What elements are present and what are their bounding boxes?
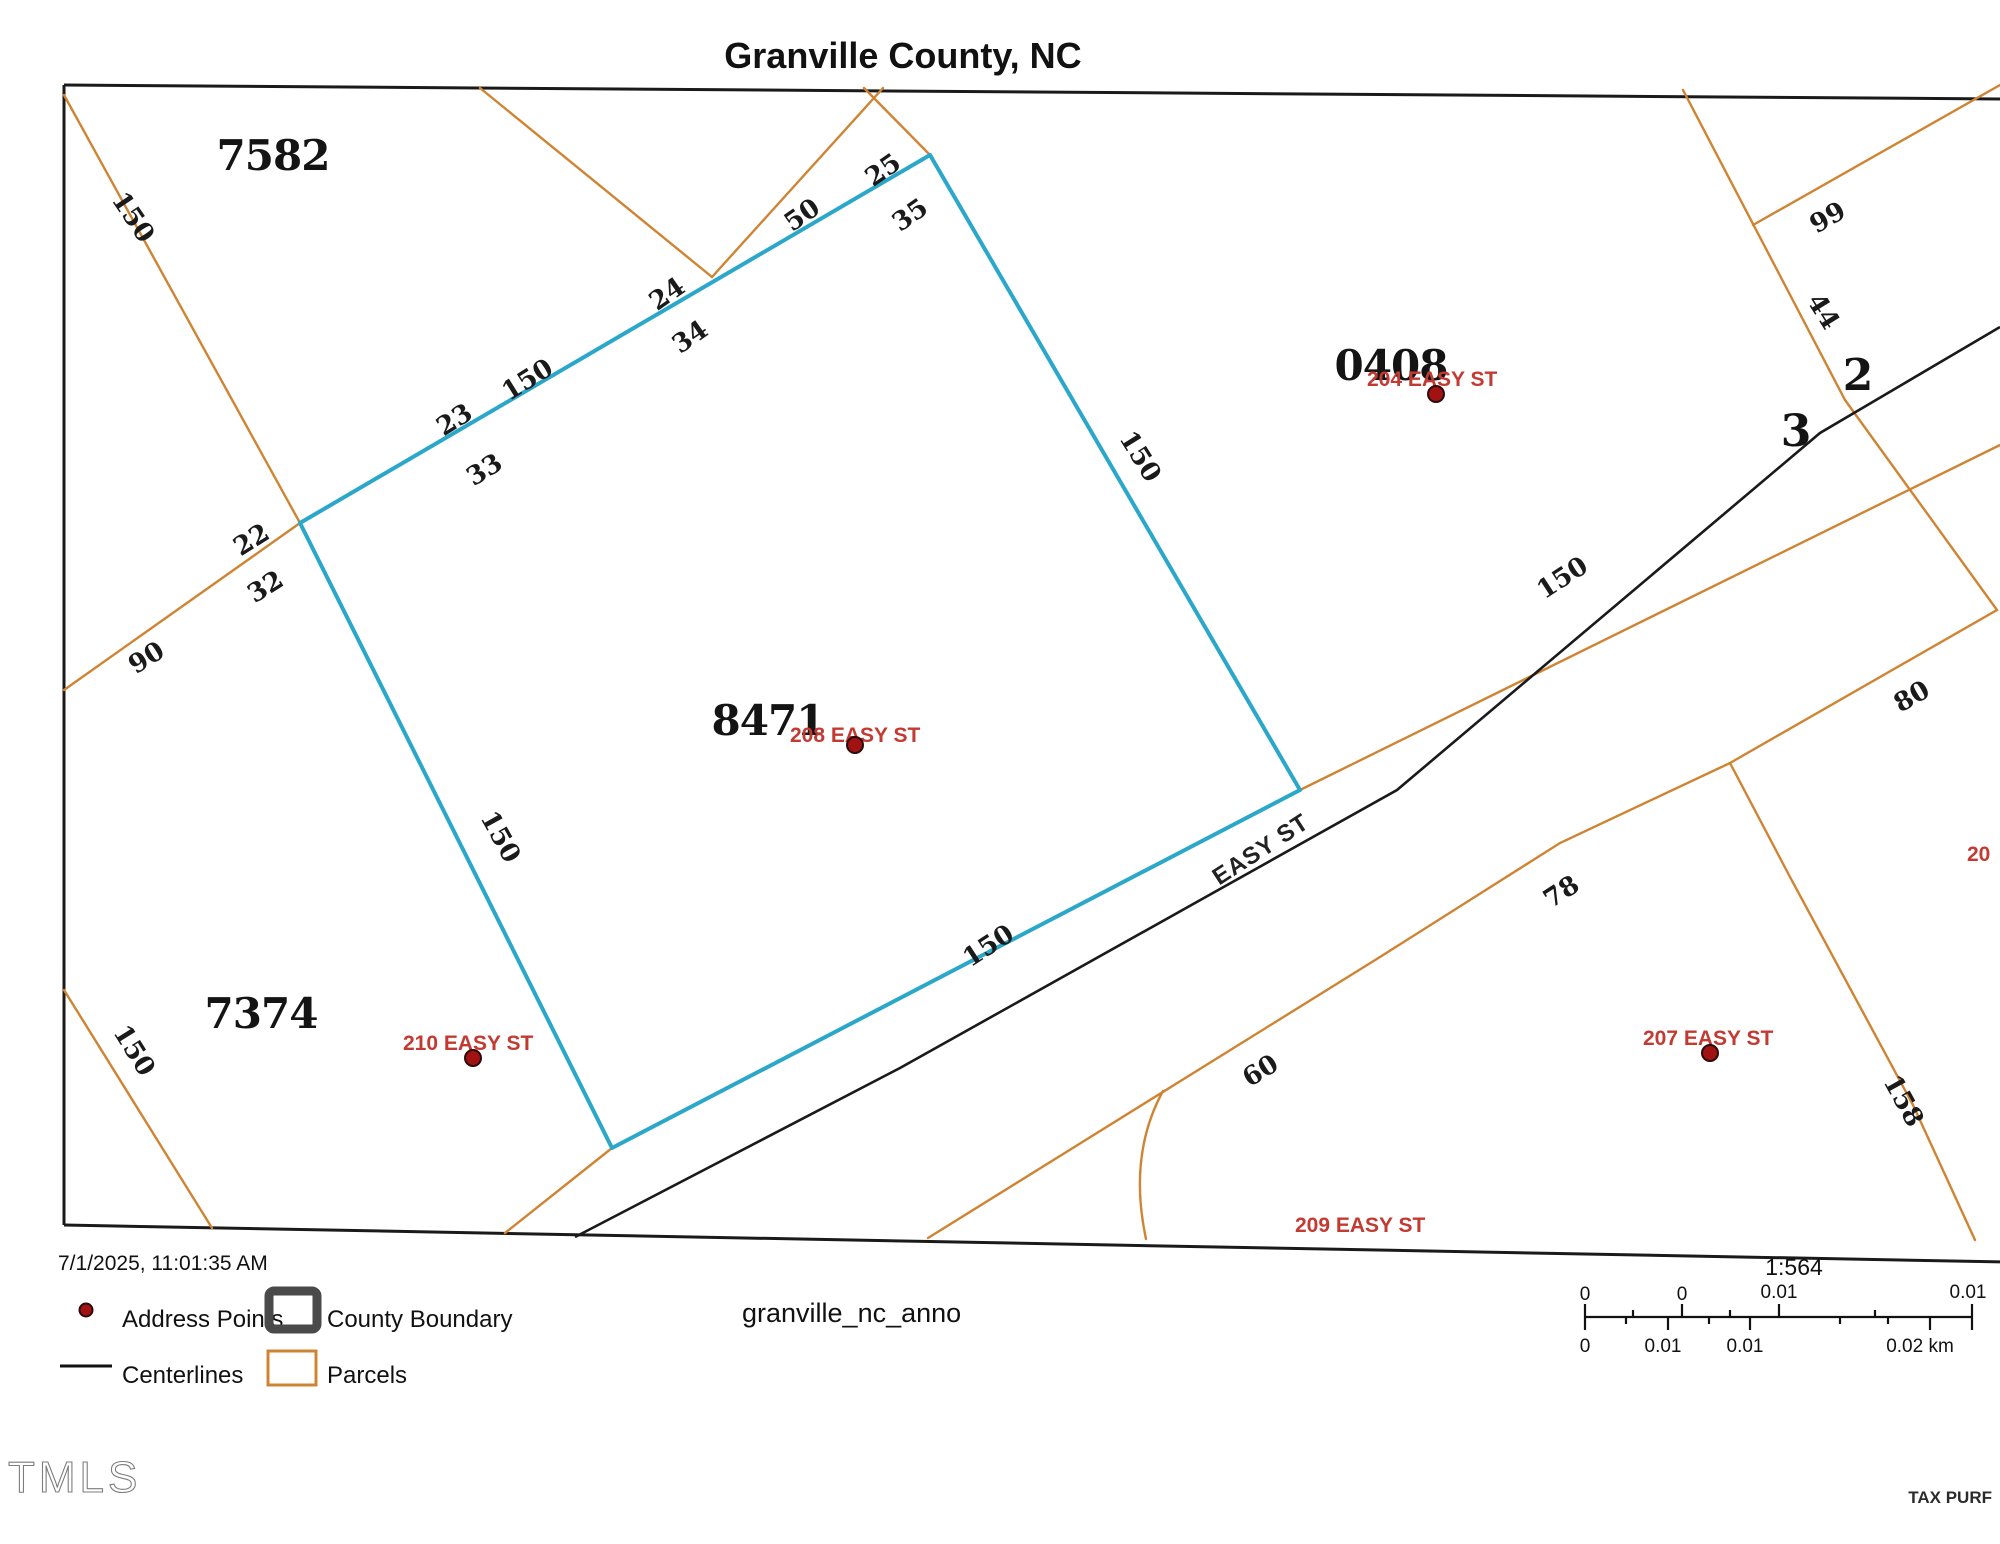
legend-parcels-label: Parcels (327, 1362, 407, 1389)
address-label-clipped: 20 (1967, 843, 1990, 866)
dim-label: 35 (887, 193, 934, 238)
dim-label: 60 (1237, 1049, 1284, 1094)
dim-label: 150 (1532, 551, 1594, 606)
parcel-id-7374: 7374 (205, 989, 318, 1038)
parcel-id-labels: 7582 0408 8471 7374 2 3 (205, 131, 1874, 1038)
dim-label: 22 (228, 518, 275, 563)
dim-label: 24 (644, 272, 691, 317)
address-dot-208 (847, 737, 863, 753)
dim-label: 32 (242, 565, 289, 610)
dim-label: 25 (860, 148, 907, 193)
scale-bar: 1:564 0 0 0.01 0.01 0 0.01 0.01 0.02 km (1580, 1254, 1987, 1357)
legend-centerlines-label: Centerlines (122, 1362, 243, 1389)
address-label-209: 209 EASY ST (1295, 1214, 1426, 1237)
address-point-dots (465, 386, 1718, 1066)
page-title: Granville County, NC (724, 35, 1081, 76)
road-centerline (575, 327, 2000, 1237)
highlighted-parcel-boundary (300, 155, 1300, 1148)
dimension-labels: 150 25 50 35 24 34 150 23 33 22 32 90 99… (105, 148, 1935, 1132)
map-canvas: Granville County, NC 7582 0408 8471 7374 (0, 0, 2000, 1544)
lot-number-3: 3 (1781, 406, 1812, 457)
scale-bottom-label: 0.01 (1645, 1336, 1682, 1357)
address-labels: 204 EASY ST 208 EASY ST 210 EASY ST 207 … (403, 368, 1990, 1237)
lot-number-2: 2 (1843, 350, 1874, 401)
dim-label: 150 (105, 187, 160, 249)
map-print-page: Granville County, NC 7582 0408 8471 7374 (0, 0, 2000, 1544)
timestamp: 7/1/2025, 11:01:35 AM (58, 1252, 268, 1275)
dim-label: 50 (779, 193, 826, 238)
street-name-label: EASY ST (1208, 809, 1314, 891)
legend-address-points-label: Address Points (122, 1306, 283, 1333)
dim-label: 80 (1889, 675, 1935, 719)
legend-county-boundary-label: County Boundary (327, 1306, 512, 1333)
address-dot-207 (1702, 1045, 1718, 1061)
dim-label: 150 (497, 353, 559, 407)
dim-label: 33 (461, 448, 508, 493)
dim-label: 150 (474, 806, 527, 868)
dim-label: 23 (431, 398, 478, 443)
legend: 7/1/2025, 11:01:35 AM Address Points Cou… (58, 1252, 961, 1389)
dim-label: 99 (1805, 196, 1851, 240)
parcel-lines (64, 85, 2000, 1240)
legend-address-point-icon (80, 1304, 93, 1317)
dim-label: 78 (1538, 870, 1585, 915)
address-dot-210 (465, 1050, 481, 1066)
scale-top-label: 0.01 (1761, 1282, 1798, 1303)
scale-bottom-label: 0.02 km (1886, 1336, 1954, 1357)
scale-top-label: 0 (1580, 1284, 1591, 1305)
scale-bar-ticks (1585, 1304, 1972, 1330)
address-dot-204 (1428, 386, 1444, 402)
scale-bottom-label: 0 (1580, 1336, 1591, 1357)
map-frame (64, 85, 2000, 1262)
scale-top-label: 0 (1677, 1284, 1688, 1305)
legend-parcels-icon (268, 1351, 316, 1385)
scale-ratio: 1:564 (1765, 1254, 1823, 1280)
scale-top-label: 0.01 (1950, 1282, 1987, 1303)
scale-bottom-label: 0.01 (1727, 1336, 1764, 1357)
tmls-logo: TMLS (8, 1453, 141, 1502)
legend-layer-name: granville_nc_anno (742, 1298, 961, 1328)
dim-label: 150 (1113, 426, 1167, 488)
dim-label: 34 (667, 315, 714, 360)
tax-purpose-note: TAX PURF (1908, 1488, 1992, 1507)
parcel-id-7582: 7582 (217, 131, 330, 180)
